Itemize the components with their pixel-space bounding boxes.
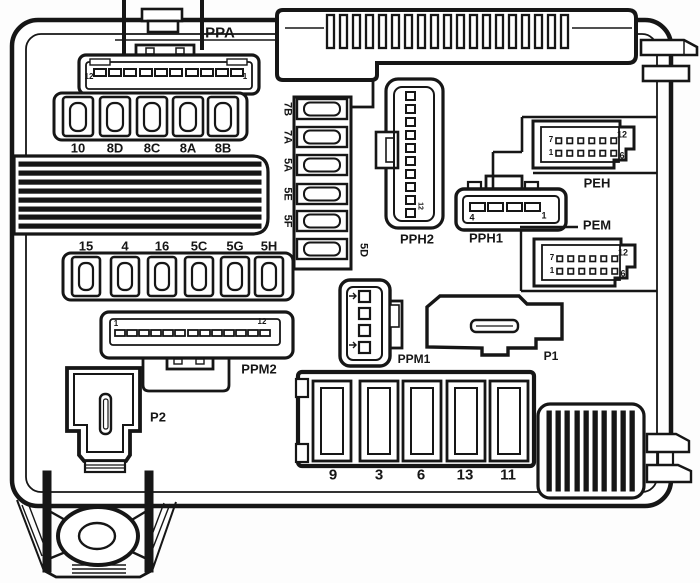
ppm2-label: PPM2 <box>241 363 276 376</box>
ppm2-pin-12: 12 <box>258 318 267 326</box>
left-ribbed-block <box>14 156 268 234</box>
ppa-pin-right: 1 <box>243 73 247 81</box>
p2-label: P2 <box>150 411 166 424</box>
fuse-label-5c: 5C <box>191 240 208 253</box>
pem-label: PEM <box>583 219 611 232</box>
fuse-label-9: 9 <box>329 468 337 483</box>
fuse-label-7a: 7A <box>282 130 293 144</box>
fuse-column-side <box>294 97 351 269</box>
right-ribbed-block <box>538 404 644 498</box>
pph2-pin-12: 12 <box>417 202 424 210</box>
pph1-pin-4: 4 <box>469 214 474 223</box>
p2-connector <box>67 368 140 472</box>
fuse-label-8b: 8B <box>215 142 232 155</box>
grommet-inner <box>79 523 115 549</box>
fuse-label-5e: 5E <box>282 187 293 200</box>
peh-label: PEH <box>584 177 611 190</box>
ppa-label: PPA <box>205 26 235 41</box>
fuse-label-5g: 5G <box>226 240 243 253</box>
pem-pin-12: 12 <box>618 249 628 258</box>
fuse-label-8d: 8D <box>107 142 124 155</box>
fuse-block-bottom <box>296 372 534 466</box>
fuse-row-top <box>54 93 247 140</box>
fuse-label-7b: 7B <box>282 102 293 116</box>
peh-connector <box>533 121 634 168</box>
fuse-label-13: 13 <box>457 468 474 483</box>
fuse-label-5h: 5H <box>261 240 278 253</box>
fuse-label-11: 11 <box>500 468 516 483</box>
peh-pin-7: 7 <box>549 136 553 144</box>
diagram-line-art <box>0 0 700 583</box>
pem-connector <box>534 239 635 286</box>
fuse-label-3: 3 <box>375 468 383 483</box>
peh-pin-1: 1 <box>549 149 553 157</box>
ppm2-pin-1: 1 <box>114 320 118 328</box>
fuse-label-6: 6 <box>417 468 425 483</box>
fuse-label-8c: 8C <box>144 142 161 155</box>
fuse-label-5d: 5D <box>358 243 369 257</box>
pph1-pin-1: 1 <box>541 212 546 221</box>
pph2-label: PPH2 <box>400 233 434 246</box>
ppm1-label: PPM1 <box>398 353 431 365</box>
pem-pin-1: 1 <box>550 267 554 275</box>
fuse-label-10: 10 <box>71 142 85 155</box>
fuse-label-5a: 5A <box>282 158 293 172</box>
peh-pin-12: 12 <box>617 131 627 140</box>
p1-label: P1 <box>544 350 559 362</box>
peh-pin-6: 6 <box>619 152 624 161</box>
pph1-label: PPH1 <box>469 232 503 245</box>
fuse-row-middle <box>63 253 293 300</box>
fuse-label-15: 15 <box>79 240 93 253</box>
fuse-label-5f: 5F <box>282 215 293 228</box>
fuse-label-4: 4 <box>121 240 128 253</box>
fuse-label-16: 16 <box>155 240 169 253</box>
pem-pin-6: 6 <box>620 270 625 279</box>
fuse-label-8a: 8A <box>180 142 197 155</box>
fuse-box-diagram: PPA 12 1 10 8D 8C 8A 8B 15 4 16 5C 5G 5H… <box>0 0 700 583</box>
ppa-pin-left: 12 <box>85 73 94 81</box>
pph2-connector <box>376 79 443 228</box>
pem-pin-7: 7 <box>550 254 554 262</box>
